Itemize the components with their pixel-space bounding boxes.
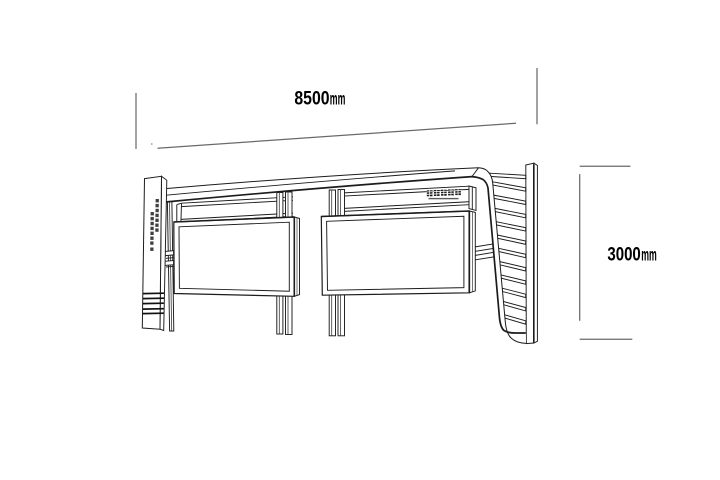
svg-text:mm: mm <box>641 244 657 264</box>
svg-text:8500: 8500 <box>294 87 329 109</box>
svg-text:mm: mm <box>330 88 346 108</box>
svg-text:3000: 3000 <box>607 243 640 265</box>
